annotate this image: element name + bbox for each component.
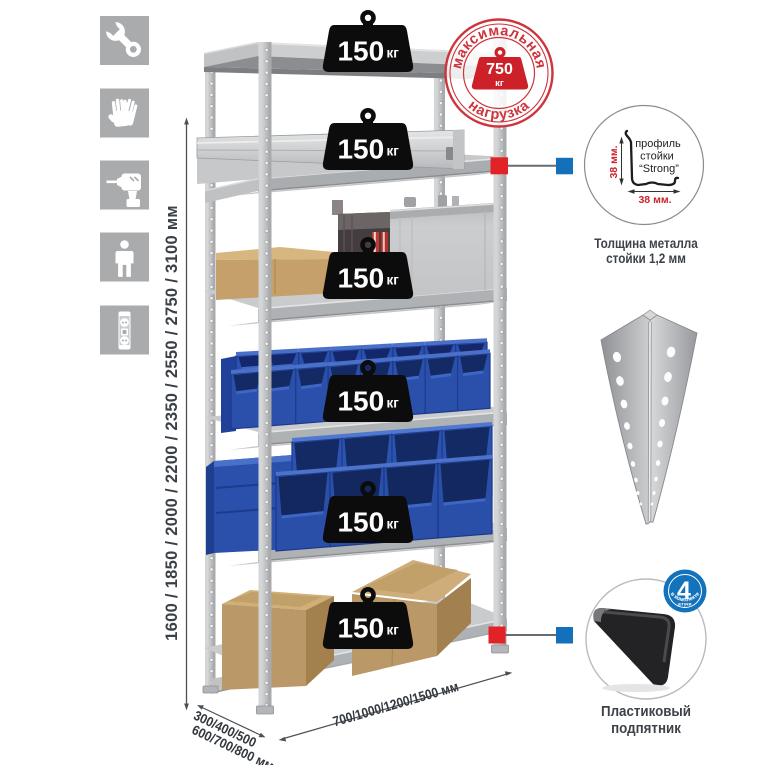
svg-text:150: 150 [337,613,384,644]
svg-text:Пластиковый: Пластиковый [601,702,691,719]
svg-text:“Strong”: “Strong” [639,163,679,175]
svg-text:150: 150 [337,263,384,294]
svg-text:Толщина металла: Толщина металла [594,235,698,251]
svg-text:кг: кг [387,396,400,411]
svg-text:кг: кг [387,46,400,61]
svg-text:150: 150 [337,386,384,417]
svg-text:подпятник: подпятник [611,719,681,736]
svg-text:стойки: стойки [640,151,674,163]
svg-text:150: 150 [337,134,384,165]
svg-text:профиль: профиль [635,138,681,150]
svg-text:кг: кг [387,144,400,159]
svg-text:1600 / 1850 / 2000 / 2200 / 23: 1600 / 1850 / 2000 / 2200 / 2350 / 2550 … [163,205,181,641]
svg-text:150: 150 [337,36,384,67]
svg-text:кг: кг [495,78,504,89]
svg-text:38 мм.: 38 мм. [638,194,671,206]
svg-text:кг: кг [387,623,400,638]
svg-text:750: 750 [486,61,513,78]
svg-text:150: 150 [337,507,384,538]
svg-text:кг: кг [387,517,400,532]
svg-text:38 мм.: 38 мм. [608,145,620,178]
svg-text:стойки 1,2 мм: стойки 1,2 мм [606,250,686,266]
svg-text:кг: кг [387,273,400,288]
